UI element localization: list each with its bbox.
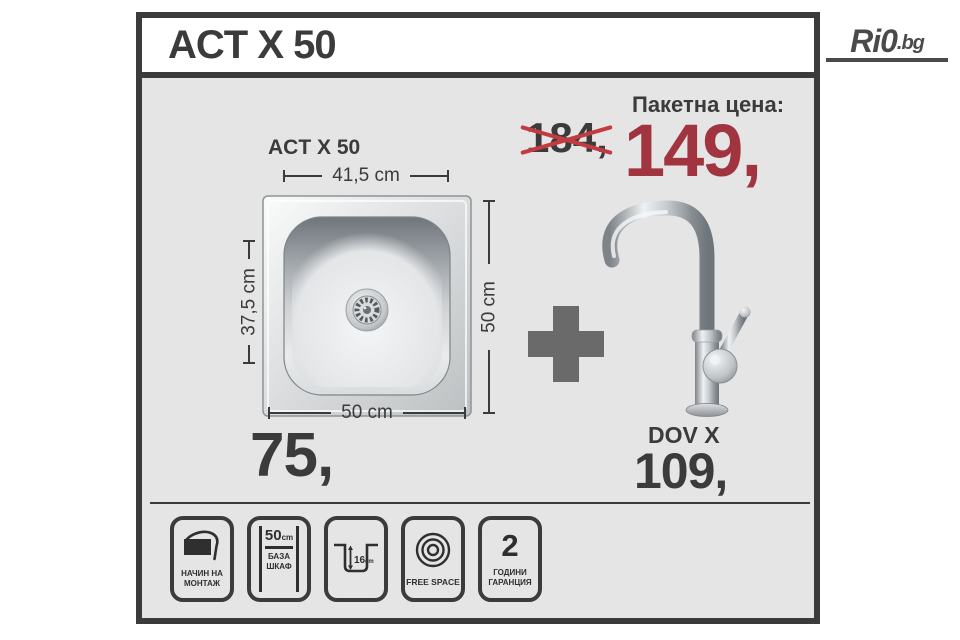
separator-line	[150, 502, 810, 504]
basin-depth-unit: cm	[365, 559, 374, 565]
warranty-years: 2	[501, 530, 518, 561]
badge-free-space-label: FREE SPACE	[406, 577, 460, 588]
dimension-right-label: 50 cm	[480, 281, 499, 333]
badge-free-space: FREE SPACE	[401, 516, 465, 602]
sink-price: 75,	[250, 420, 333, 491]
sink-model-label: ACT X 50	[268, 136, 360, 160]
old-price-value: 184,	[526, 114, 608, 162]
cabinet-width-unit: cm	[282, 533, 294, 542]
cabinet-width-icon: 50cm БАЗА ШКАФ	[259, 526, 299, 592]
dimension-left-label: 37,5 cm	[240, 268, 259, 336]
old-price: 184,	[526, 114, 608, 162]
site-logo-tld: .bg	[897, 30, 924, 56]
faucet-image	[588, 196, 766, 420]
badge-mounting: НАЧИН НА МОНТАЖ	[170, 516, 234, 602]
faucet-price: 109,	[634, 442, 727, 500]
dimension-top: 41,5 cm	[283, 166, 449, 185]
badge-mounting-line1: НАЧИН НА	[181, 569, 223, 579]
badge-basin-depth: 16 cm	[324, 516, 388, 602]
title-bar: ACT X 50	[142, 18, 814, 78]
dimension-top-label: 41,5 cm	[322, 166, 410, 185]
badge-cabinet-line2: ШКАФ	[266, 562, 291, 572]
feature-badges: НАЧИН НА МОНТАЖ 50cm БАЗА ШКАФ	[170, 516, 542, 602]
promo-card: ACT X 50 Пакетна цена: 184, 149, ACT X 5…	[136, 12, 820, 624]
free-space-icon	[413, 530, 453, 570]
badge-mounting-line2: МОНТАЖ	[181, 579, 223, 589]
promo-body: Пакетна цена: 184, 149, ACT X 50 41,5 cm	[142, 78, 814, 618]
badge-warranty: 2 ГОДИНИ ГАРАНЦИЯ	[478, 516, 542, 602]
site-logo[interactable]: Ri0.bg	[826, 12, 948, 62]
cabinet-width-value: 50	[265, 527, 282, 544]
new-price: 149,	[624, 108, 760, 193]
dimension-left: 37,5 cm	[238, 240, 260, 364]
badge-cabinet-width: 50cm БАЗА ШКАФ	[247, 516, 311, 602]
mount-icon	[181, 529, 223, 563]
page-title: ACT X 50	[168, 23, 336, 68]
basin-depth-icon: 16 cm	[332, 536, 380, 582]
badge-cabinet-line1: БАЗА	[266, 552, 291, 562]
sink-drain-icon	[346, 289, 388, 331]
dimension-right: 50 cm	[478, 200, 500, 414]
sink-image	[262, 195, 472, 417]
site-logo-main: Ri0	[850, 26, 897, 56]
badge-warranty-line1: ГОДИНИ	[488, 568, 531, 578]
badge-warranty-line2: ГАРАНЦИЯ	[488, 578, 531, 588]
basin-depth-value: 16	[354, 555, 366, 566]
dimension-bottom-label: 50 cm	[331, 403, 403, 422]
